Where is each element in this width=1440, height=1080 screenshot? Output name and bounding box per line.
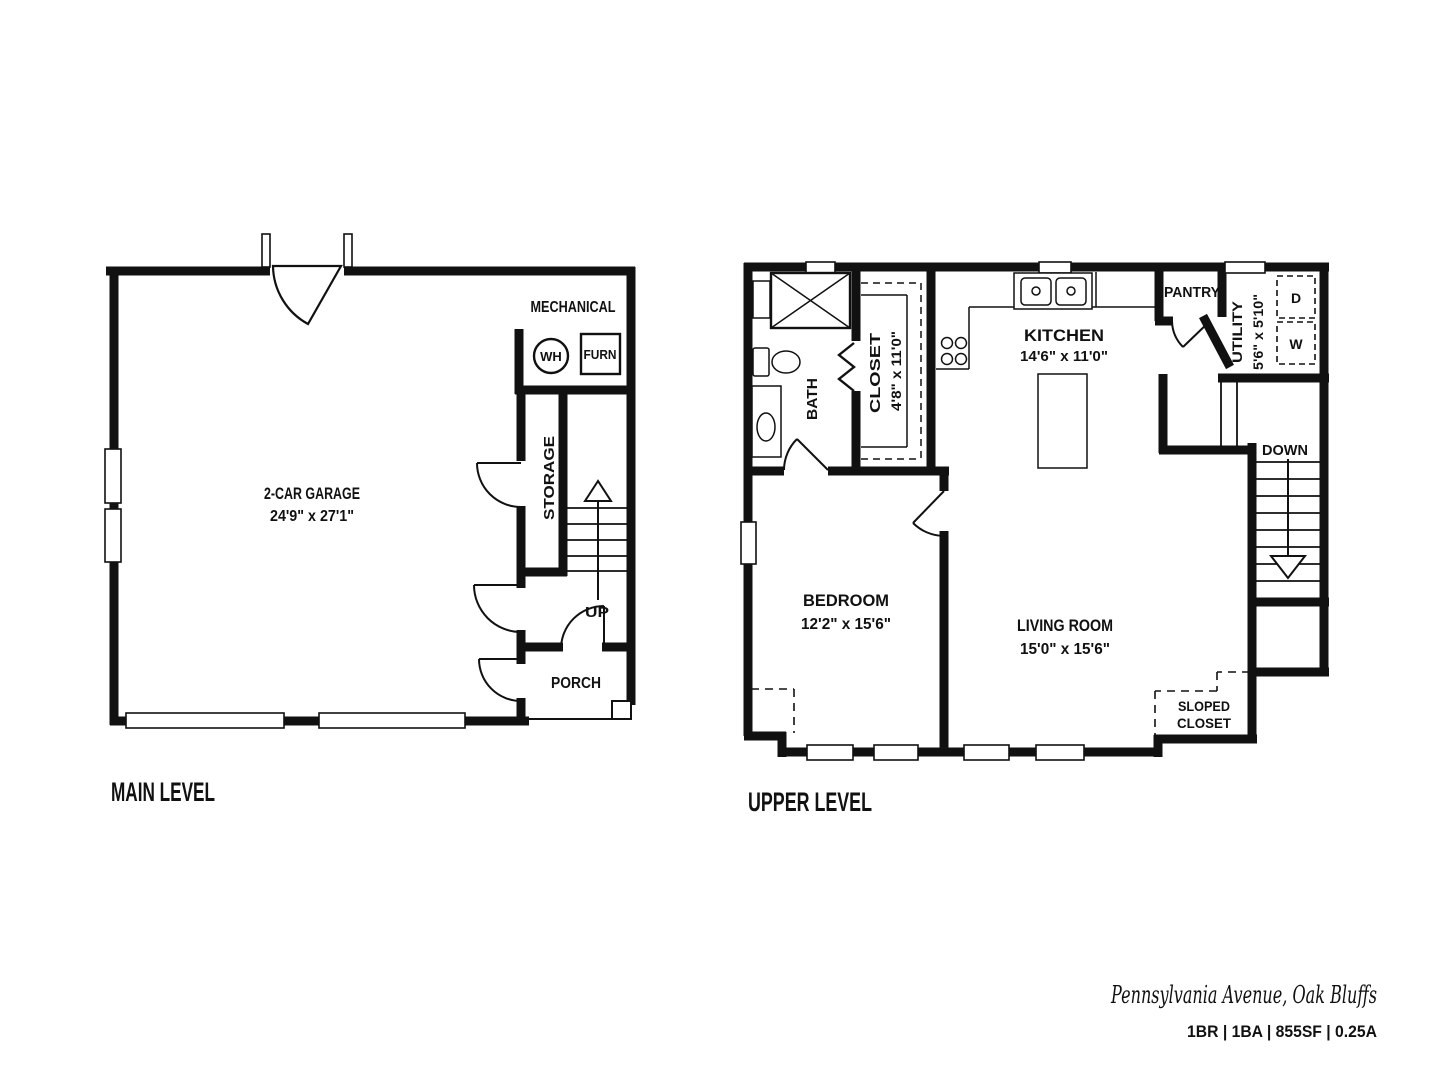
storage-label: STORAGE bbox=[541, 436, 558, 520]
stairs-down: DOWN bbox=[1221, 382, 1320, 581]
toilet-bowl-icon bbox=[772, 351, 800, 373]
mechanical-label: MECHANICAL bbox=[531, 299, 616, 316]
bath-fixtures bbox=[752, 273, 850, 457]
porch-label: PORCH bbox=[551, 675, 601, 692]
down-label: DOWN bbox=[1262, 442, 1308, 459]
door-jamb-post bbox=[344, 234, 352, 267]
sloped-ceiling-boundaries bbox=[751, 672, 1250, 737]
furnace-label: FURN bbox=[584, 348, 617, 362]
sloped-closet-label-line1: SLOPED bbox=[1178, 699, 1230, 714]
bedroom-door bbox=[913, 491, 944, 536]
down-arrow-icon bbox=[1271, 556, 1305, 578]
footer: Pennsylvania Avenue, Oak Bluffs 1BR | 1B… bbox=[1110, 981, 1377, 1041]
up-arrow-icon bbox=[585, 481, 611, 501]
address-text: Pennsylvania Avenue, Oak Bluffs bbox=[1110, 981, 1377, 1009]
upper-level-title: UPPER LEVEL bbox=[748, 787, 872, 817]
main-level-doors bbox=[474, 463, 604, 701]
landing-door bbox=[474, 585, 521, 632]
specs-text: 1BR | 1BA | 855SF | 0.25A bbox=[1187, 1023, 1377, 1041]
water-heater-label: WH bbox=[540, 349, 562, 364]
stairs-up: UP bbox=[567, 481, 627, 621]
wall-stair-landing bbox=[1159, 374, 1256, 453]
up-label: UP bbox=[585, 604, 609, 621]
sloped-closet-label-line2: CLOSET bbox=[1177, 716, 1232, 731]
garage-label: 2-CAR GARAGE bbox=[264, 484, 360, 503]
bedroom-label: BEDROOM bbox=[803, 592, 889, 610]
main-level-title: MAIN LEVEL bbox=[111, 777, 215, 807]
washer-label: W bbox=[1289, 336, 1303, 352]
floorplan-canvas: UP WH FURN MECHANICAL STORAGE 2-CAR GARA… bbox=[0, 0, 1440, 1080]
upper-level-plan: D W DOWN BATH CLOSET 4'8" x 11'0" KITCHE… bbox=[741, 262, 1329, 817]
door-swing bbox=[273, 266, 341, 324]
window bbox=[807, 745, 853, 760]
utility-dims: 5'6" x 5'10" bbox=[1251, 294, 1266, 370]
kitchen-island bbox=[1038, 374, 1087, 468]
living-room-dims: 15'0" x 15'6" bbox=[1020, 641, 1110, 658]
stove-burner-icon bbox=[956, 354, 967, 365]
window bbox=[806, 262, 835, 273]
dryer-label: D bbox=[1291, 290, 1301, 306]
stove-burner-icon bbox=[942, 354, 953, 365]
linen-niche bbox=[753, 281, 770, 318]
stove-burner-icon bbox=[956, 338, 967, 349]
floorplan-page: UP WH FURN MECHANICAL STORAGE 2-CAR GARA… bbox=[0, 0, 1440, 1080]
upper-level-windows bbox=[741, 262, 1265, 760]
window bbox=[741, 522, 756, 564]
bedroom-sloped-dashed bbox=[751, 689, 794, 733]
garage-dims: 24'9" x 27'1" bbox=[270, 508, 354, 525]
pantry-label: PANTRY bbox=[1164, 285, 1220, 301]
window bbox=[1225, 262, 1265, 273]
stove-burner-icon bbox=[942, 338, 953, 349]
window bbox=[126, 713, 284, 728]
kitchen-fixtures bbox=[936, 272, 1158, 468]
shower-x-lines bbox=[771, 273, 850, 328]
garage-entry-door bbox=[262, 234, 352, 324]
vanity-sink-icon bbox=[757, 413, 775, 441]
porch-post bbox=[612, 701, 631, 719]
utility-label: UTILITY bbox=[1229, 300, 1245, 363]
kitchen-label: KITCHEN bbox=[1024, 327, 1104, 345]
mechanical-fixtures: WH FURN bbox=[534, 334, 620, 374]
closet-label: CLOSET bbox=[867, 333, 884, 413]
upper-level-doors bbox=[784, 321, 1210, 536]
window bbox=[1039, 262, 1071, 273]
window bbox=[105, 509, 121, 562]
window bbox=[1036, 745, 1084, 760]
bath-label: BATH bbox=[804, 378, 821, 420]
window bbox=[874, 745, 918, 760]
main-level-plan: UP WH FURN MECHANICAL STORAGE 2-CAR GARA… bbox=[105, 234, 635, 807]
door-jamb-post bbox=[262, 234, 270, 267]
closet-bifold-door bbox=[839, 343, 854, 391]
storage-door bbox=[477, 463, 521, 507]
window bbox=[964, 745, 1009, 760]
window bbox=[105, 449, 121, 503]
stair-rail-lines bbox=[1221, 382, 1237, 446]
window bbox=[319, 713, 465, 728]
kitchen-dims: 14'6" x 11'0" bbox=[1020, 348, 1108, 365]
closet-dims: 4'8" x 11'0" bbox=[889, 331, 904, 411]
porch-side-door bbox=[479, 659, 521, 701]
vanity-counter bbox=[752, 386, 781, 457]
living-room-label: LIVING ROOM bbox=[1017, 617, 1113, 635]
toilet-tank-icon bbox=[753, 348, 769, 376]
bedroom-dims: 12'2" x 15'6" bbox=[801, 616, 891, 633]
bath-door bbox=[784, 439, 828, 470]
